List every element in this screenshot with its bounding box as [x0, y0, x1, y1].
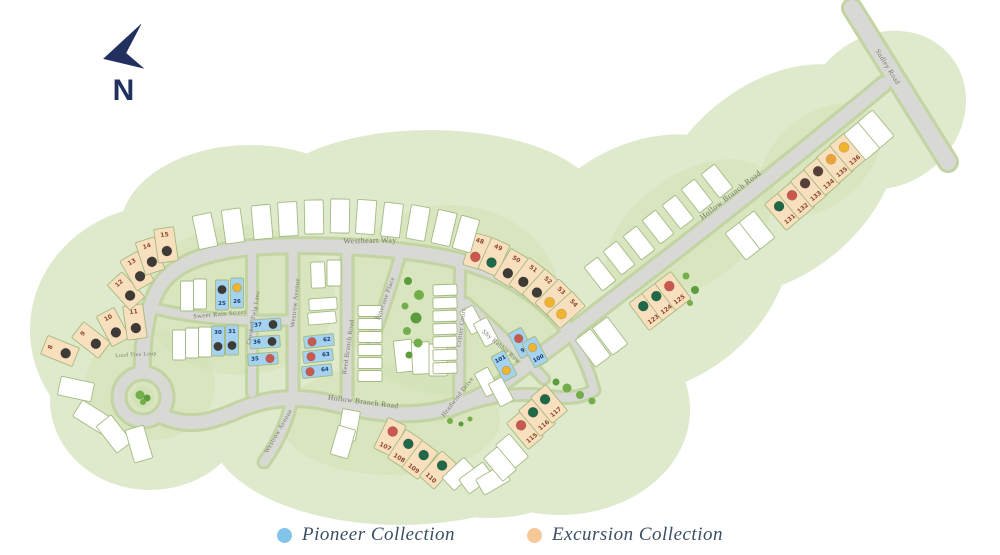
legend-item-excursion: Excursion Collection: [527, 524, 723, 546]
lot-open: [433, 349, 457, 361]
lot-shape: [311, 262, 326, 288]
lot-shape: [194, 279, 207, 309]
lot-open: [411, 342, 431, 375]
tree-icon: [468, 417, 473, 422]
lot-open: [433, 336, 457, 348]
status-dot-red: [265, 354, 274, 363]
north-arrow-icon: [96, 24, 152, 76]
legend: Pioneer Collection Excursion Collection: [0, 524, 1000, 546]
lot-shape: [181, 281, 194, 311]
lot-shape: [358, 358, 382, 369]
lot-shape: [358, 345, 382, 356]
north-label: N: [96, 77, 152, 104]
lot-open: [330, 199, 350, 233]
lot-open: [358, 345, 382, 356]
lot-number: 64: [321, 367, 329, 374]
lot-open: [311, 262, 326, 288]
lot-35[interactable]: 35: [248, 352, 279, 366]
pioneer-color-swatch: [277, 528, 292, 543]
lot-shape: [411, 342, 431, 375]
lot-shape: [186, 328, 199, 358]
lot-shape: [309, 297, 338, 311]
tree-icon: [687, 300, 693, 306]
lot-number: 26: [233, 299, 241, 305]
lot-open: [199, 327, 212, 357]
lot-shape: [199, 327, 212, 357]
lot-shape: [433, 349, 457, 361]
pioneer-legend-label: Pioneer Collection: [302, 524, 455, 546]
tree-icon: [553, 379, 560, 386]
status-dot-black: [228, 341, 237, 350]
tree-icon: [403, 327, 411, 335]
lot-shape: [433, 362, 457, 374]
lot-open: [355, 199, 376, 234]
lot-open: [181, 281, 194, 311]
lot-open: [278, 202, 299, 237]
lot-shape: [355, 199, 376, 234]
street-label: Westheart Way: [343, 236, 396, 246]
lot-open: [358, 332, 382, 343]
lot-15[interactable]: 15: [154, 227, 179, 263]
lot-number: 25: [218, 301, 226, 307]
lot-shape: [433, 336, 457, 348]
status-dot-black: [267, 337, 276, 346]
lot-open: [327, 260, 341, 286]
lot-open: [221, 208, 245, 244]
lot-shape: [433, 323, 457, 335]
lot-open: [251, 204, 273, 240]
lot-shape: [358, 371, 382, 382]
lot-shape: [358, 332, 382, 343]
tree-icon: [414, 339, 423, 348]
tree-icon: [402, 303, 409, 310]
lot-number: 31: [228, 329, 236, 335]
lot-open: [308, 311, 337, 325]
lot-open: [433, 284, 457, 296]
tree-icon: [140, 399, 146, 405]
lot-25[interactable]: 25: [216, 280, 229, 310]
status-dot-black: [218, 285, 227, 294]
lot-number: 63: [322, 352, 330, 359]
lot-open: [194, 279, 207, 309]
lot-shape: [380, 202, 403, 238]
lot-number: 36: [253, 339, 261, 346]
status-dot-black: [214, 342, 223, 351]
lot-shape: [330, 199, 350, 233]
lot-shape: [308, 311, 337, 325]
lot-open: [358, 358, 382, 369]
lot-number: 15: [160, 231, 169, 239]
status-dot-yellow: [233, 283, 242, 292]
lot-number: 30: [214, 330, 222, 336]
lot-shape: [278, 202, 299, 237]
lot-31[interactable]: 31: [226, 325, 239, 355]
lot-number: 35: [251, 356, 259, 363]
legend-item-pioneer: Pioneer Collection: [277, 524, 455, 546]
lot-30[interactable]: 30: [212, 326, 225, 356]
north-indicator: N: [96, 24, 152, 104]
lot-shape: [433, 284, 457, 296]
lot-11[interactable]: 11: [123, 304, 148, 340]
tree-icon: [563, 384, 572, 393]
lot-shape: [327, 260, 341, 286]
lot-62[interactable]: 62: [303, 333, 334, 348]
lot-64[interactable]: 64: [301, 363, 332, 378]
lot-open: [433, 362, 457, 374]
lot-shape: [304, 200, 324, 234]
lot-open: [358, 371, 382, 382]
tree-icon: [589, 398, 596, 405]
tree-icon: [414, 290, 424, 300]
tree-icon: [683, 273, 690, 280]
lot-26[interactable]: 26: [231, 278, 244, 308]
lot-open: [309, 297, 338, 311]
tree-icon: [459, 422, 464, 427]
lot-shape: [251, 204, 273, 240]
tree-icon: [576, 391, 584, 399]
lot-open: [433, 323, 457, 335]
tree-icon: [447, 418, 453, 424]
lot-36[interactable]: 36: [250, 335, 281, 349]
lot-open: [186, 328, 199, 358]
tree-icon: [406, 352, 413, 359]
lot-open: [173, 330, 186, 360]
tree-icon: [691, 286, 699, 294]
excursion-color-swatch: [527, 528, 542, 543]
tree-icon: [404, 277, 412, 285]
lot-open: [304, 200, 324, 234]
lot-open: [433, 297, 457, 309]
lot-open: [433, 310, 457, 322]
lot-open: [380, 202, 403, 238]
lot-shape: [433, 310, 457, 322]
status-dot-black: [268, 320, 277, 329]
excursion-legend-label: Excursion Collection: [552, 524, 723, 546]
lot-shape: [173, 330, 186, 360]
lot-number: 62: [323, 337, 331, 344]
lot-63[interactable]: 63: [302, 348, 333, 363]
tree-icon: [411, 313, 422, 324]
lot-shape: [433, 297, 457, 309]
tree-icon: [136, 391, 145, 400]
lot-shape: [221, 208, 245, 244]
